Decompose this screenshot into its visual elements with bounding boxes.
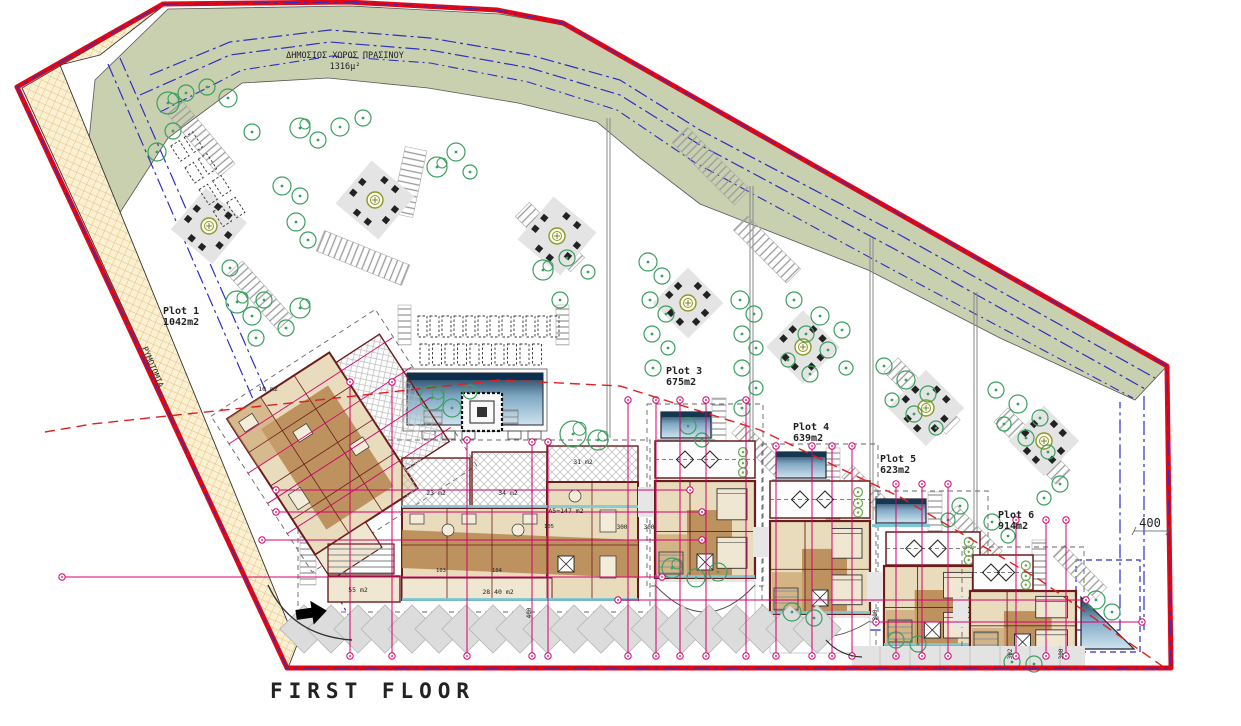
tree-icon (533, 260, 553, 280)
sunbed (430, 316, 439, 337)
tree-icon (1037, 491, 1051, 505)
green-space-label: ΔΗΜΟΣΙΟΣ ΧΩΡΟΣ ΠΡΑΣΙΝΟΥ (286, 51, 404, 61)
sunbed (508, 344, 517, 365)
tree-icon (811, 307, 829, 325)
room-area-label: 10 m2 (258, 385, 278, 393)
tree-icon (248, 330, 264, 346)
tree-icon (273, 177, 291, 195)
green-space-area: 1316μ² (330, 62, 361, 72)
tree-icon (331, 118, 349, 136)
tree-icon (290, 118, 310, 138)
tree-icon (639, 253, 657, 271)
tree-icon (746, 306, 762, 322)
tree-icon (290, 298, 310, 318)
dimension-label: 300 (1058, 648, 1065, 659)
dimension-label: 300 (617, 524, 628, 531)
tree-icon (427, 157, 447, 177)
site-plan-drawing: ΔΗΜΟΣΙΟΣ ΧΩΡΟΣ ΠΡΑΣΙΝΟΥ 1316μ² ΡΥΜΟΤΟΜΙΑ… (0, 0, 1241, 726)
sunbed (514, 316, 523, 337)
sunbed (526, 316, 535, 337)
tree-icon (839, 361, 853, 375)
sunbed (433, 344, 442, 365)
sunbed (442, 316, 451, 337)
room-area-label: A5=147 m2 (548, 507, 583, 515)
sunbed (478, 316, 487, 337)
room-area-label: 23 m2 (426, 489, 446, 497)
dimension-label: 300 (644, 524, 655, 531)
tree-icon (988, 382, 1004, 398)
tree-icon (749, 381, 763, 395)
sunbed (418, 316, 427, 337)
garden-path (556, 305, 569, 345)
tree-icon (310, 132, 326, 148)
tree-icon (1104, 604, 1120, 620)
sunbed (454, 316, 463, 337)
tree-icon (786, 292, 802, 308)
garden-path (398, 305, 411, 345)
floor-title: FIRST FLOOR (270, 679, 475, 703)
tree-icon (644, 326, 660, 342)
dimension-label: 300 (872, 609, 879, 620)
tree-icon (300, 232, 316, 248)
sunbed (502, 316, 511, 337)
unit-number-label: 103 (436, 568, 446, 574)
plot-label: Plot 11042m2 (163, 306, 199, 328)
tree-icon (731, 291, 749, 309)
sunbed (533, 344, 542, 365)
bottom-right-paving (852, 646, 1085, 668)
garden-path (316, 231, 410, 286)
sunbed (458, 344, 467, 365)
unit-number-label: 105 (544, 524, 554, 530)
tree-icon (463, 165, 477, 179)
tree-icon (734, 326, 750, 342)
sunbed (445, 344, 454, 365)
tree-icon (1009, 395, 1027, 413)
plot-label: Plot 5623m2 (880, 454, 916, 476)
tree-icon (287, 213, 305, 231)
sunbed (470, 344, 479, 365)
tree-icon (244, 124, 260, 140)
sunbed (483, 344, 492, 365)
first-floor-site-plan: ΔΗΜΟΣΙΟΣ ΧΩΡΟΣ ΠΡΑΣΙΝΟΥ 1316μ² ΡΥΜΟΤΟΜΙΑ… (0, 0, 1241, 726)
room-area-label: 55 m2 (348, 586, 368, 594)
tree-icon (642, 292, 658, 308)
tree-icon (560, 421, 586, 447)
dimension-label: 400 (526, 607, 533, 618)
tree-icon (834, 322, 850, 338)
tree-icon (581, 265, 595, 279)
room-area-label: 28.40 m2 (482, 588, 513, 596)
tree-icon (226, 291, 248, 313)
tree-icon (749, 341, 763, 355)
room-area-label: 34 m2 (498, 489, 518, 497)
tree-icon (355, 110, 371, 126)
plot-label: Plot 4639m2 (793, 422, 829, 444)
sunbed (495, 344, 504, 365)
dimension-label: 400 (1139, 516, 1161, 530)
sunbed (466, 316, 475, 337)
tree-icon (661, 341, 675, 355)
tree-icon (654, 268, 670, 284)
tree-icon (243, 307, 261, 325)
sunbed (420, 344, 429, 365)
room-area-label: 31 m2 (573, 458, 593, 466)
garden-plaza (1009, 406, 1080, 477)
tree-icon (292, 188, 308, 204)
tree-icon (734, 360, 750, 376)
unit-number-label: 104 (492, 568, 503, 574)
sunbed (490, 316, 499, 337)
dimension-label: 302 (1007, 648, 1014, 659)
tree-icon (447, 143, 465, 161)
sunbed (538, 316, 547, 337)
plot-label: Plot 6914m2 (998, 510, 1034, 532)
sunbed (520, 344, 529, 365)
plot-label: Plot 3675m2 (666, 366, 702, 388)
tree-icon (645, 360, 661, 376)
garden-plaza (653, 268, 724, 339)
public-green-area (88, 6, 1167, 400)
garden-plaza (766, 310, 840, 384)
